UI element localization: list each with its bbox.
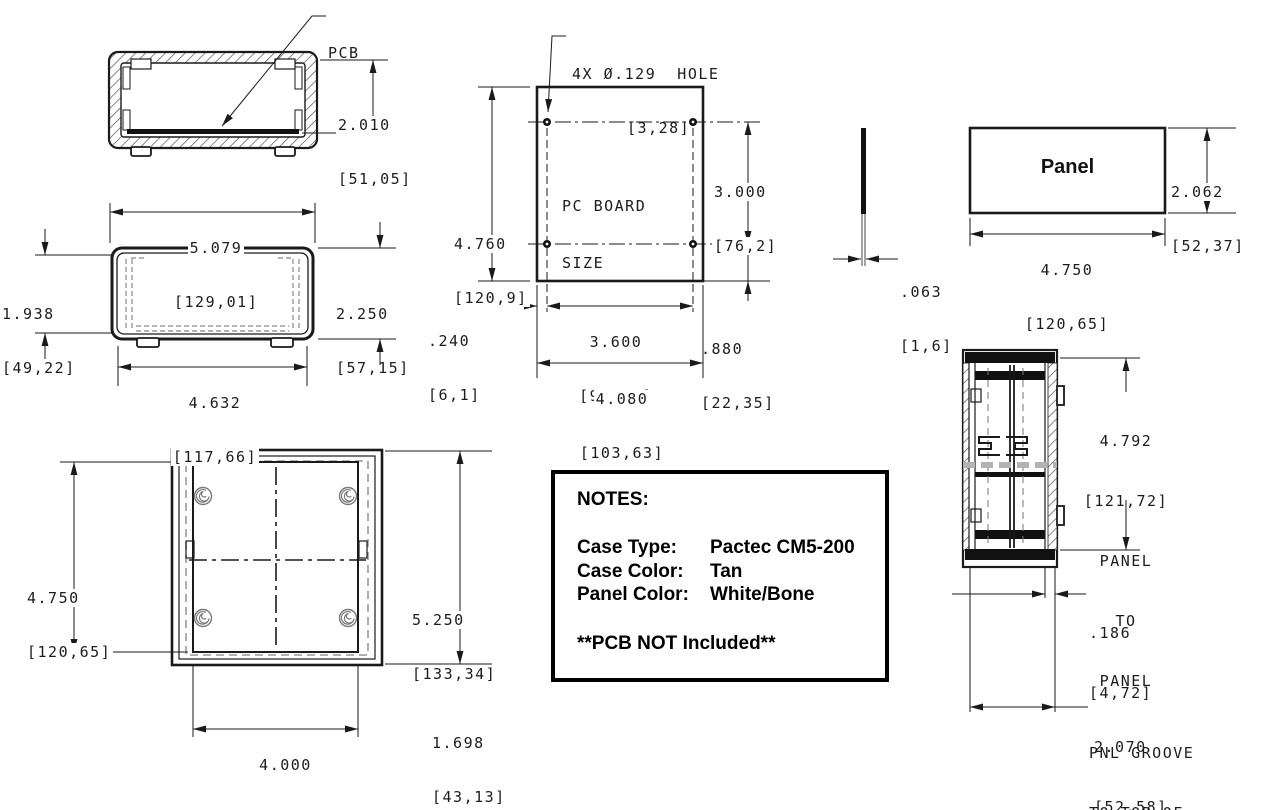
case-foot [137,338,159,347]
dim-front-height-right: 2.250 [57,15] [336,269,410,395]
pc-board-size-label: PC BOARD SIZE [562,159,646,292]
notes-footer: **PCB NOT Included** [577,633,885,655]
dim-top-outer-height: 5.250 [133,34] [410,575,498,701]
notes-row-case-type: Case Type: Pactec CM5-200 [577,536,885,560]
dim-front-width-bottom: 4.632 [117,66] [170,358,260,484]
dim-top-depth: 1.698 [43,13] [432,698,506,810]
case-tab [275,59,295,69]
side-view [963,350,1064,567]
dim-top-inner-width: 4.750 [120,65] [25,553,113,679]
dim-panel-height: 2.062 [52,37] [1169,147,1247,273]
dim-panel-width: 4.750 [120,65] [1012,225,1122,351]
panel-label: Panel [1020,156,1115,179]
dim-panel-thickness: .063 [1,6] [900,247,953,373]
notes-title: NOTES: [577,489,885,511]
case-foot [275,147,295,156]
dim-front-height-left: 1.938 [49,22] [2,269,76,395]
case-foot [271,338,293,347]
dim-board-edge-offset: .240 [6,1] [428,296,481,422]
notes-row-panel-color: Panel Color: White/Bone [577,583,885,607]
panel-tab [1057,386,1064,405]
case-tab [131,59,151,69]
drawing-canvas: PCB 2.010 [51,05] 4X Ø.129 HOLE [3,28] P… [0,0,1266,810]
dim-hole-spacing-v: 3.000 [76,2] [712,147,779,273]
dim-panel-opening: 2.070 [52,58] PANEL OPENING [1094,697,1168,810]
panel-edge-view [833,128,898,266]
notes-box: NOTES: Case Type: Pactec CM5-200 Case Co… [551,470,889,682]
panel-tab [1057,506,1064,525]
end-view [109,16,326,156]
notes-rows: Case Type: Pactec CM5-200 Case Color: Ta… [577,536,885,607]
case-foot [131,147,151,156]
notes-row-case-color: Case Color: Tan [577,560,885,584]
dim-board-width: 4.080 [103,63] [572,354,672,480]
hole-callout: 4X Ø.129 HOLE [3,28] [572,29,719,155]
dim-front-width-top: 5.079 [129,01] [172,203,260,329]
dim-end-height: 2.010 [51,05] [336,80,414,206]
dim-hole-bottom-offset: .880 [22,35] [701,304,775,430]
pcb-label: PCB [328,8,360,80]
pcb-board [127,129,299,134]
dim-top-opening-width: 4.000 [101,6] [243,720,328,810]
